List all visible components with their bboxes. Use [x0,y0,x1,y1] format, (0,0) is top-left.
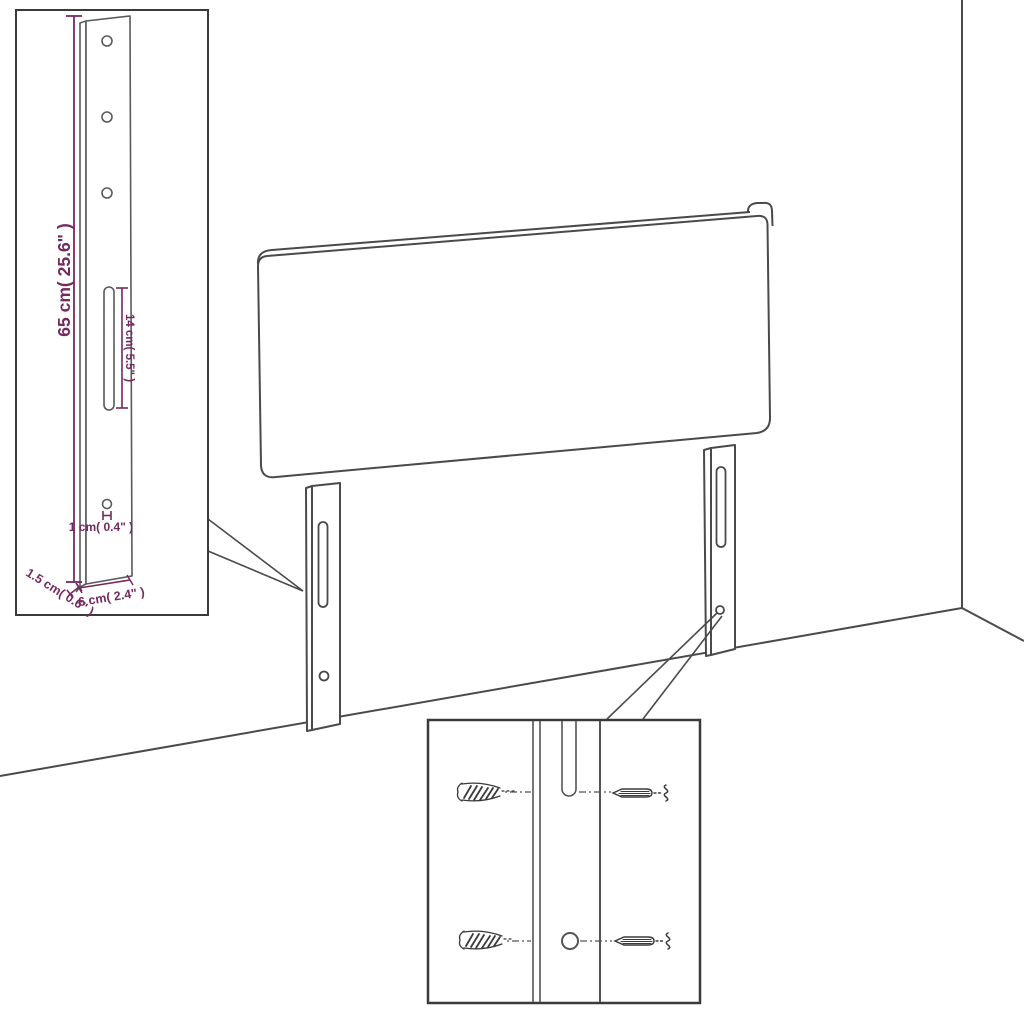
inset-leg-hole-3 [102,188,112,198]
dimension-slot-length-label: 14 cm( 5.5" ) [123,314,135,382]
callout-line-upper [208,519,303,591]
inset-border [428,720,700,1003]
callout-line-lower [643,616,722,719]
inset-leg-drawing [76,16,132,592]
floor-line-right [962,608,1024,641]
inset-leg-slot [104,287,114,410]
inset-leg-hole-1 [102,36,112,46]
headboard-leg-left [306,483,340,731]
inset-leg-side-face [80,21,86,587]
dimension-leg-height-label: 65 cm( 25.6" ) [54,223,74,336]
headboard-leg-right [704,445,735,656]
dimension-hole-diameter-label: 1 cm( 0.4" ) [69,520,133,534]
callout-line-upper [607,613,717,719]
leg-hole [716,606,724,614]
callout-line-lower [208,551,303,591]
inset-leg-small-hole [103,500,112,509]
mounting-detail-inset [428,720,700,1003]
headboard-panel [258,203,773,477]
headboard-dimension-diagram: 65 cm( 25.6" ) 14 cm( 5.5" ) 1 cm( 0.4" … [0,0,1024,1024]
leg-slot [319,522,328,607]
leg-slot [717,467,726,547]
leg-detail-inset: 65 cm( 25.6" ) 14 cm( 5.5" ) 1 cm( 0.4" … [16,10,208,619]
callout-left-leg [208,519,303,591]
diagram-canvas: 65 cm( 25.6" ) 14 cm( 5.5" ) 1 cm( 0.4" … [0,0,1024,1024]
leg-hole [320,672,329,681]
inset-leg-hole-2 [102,112,112,122]
panel-front-face [258,216,770,477]
